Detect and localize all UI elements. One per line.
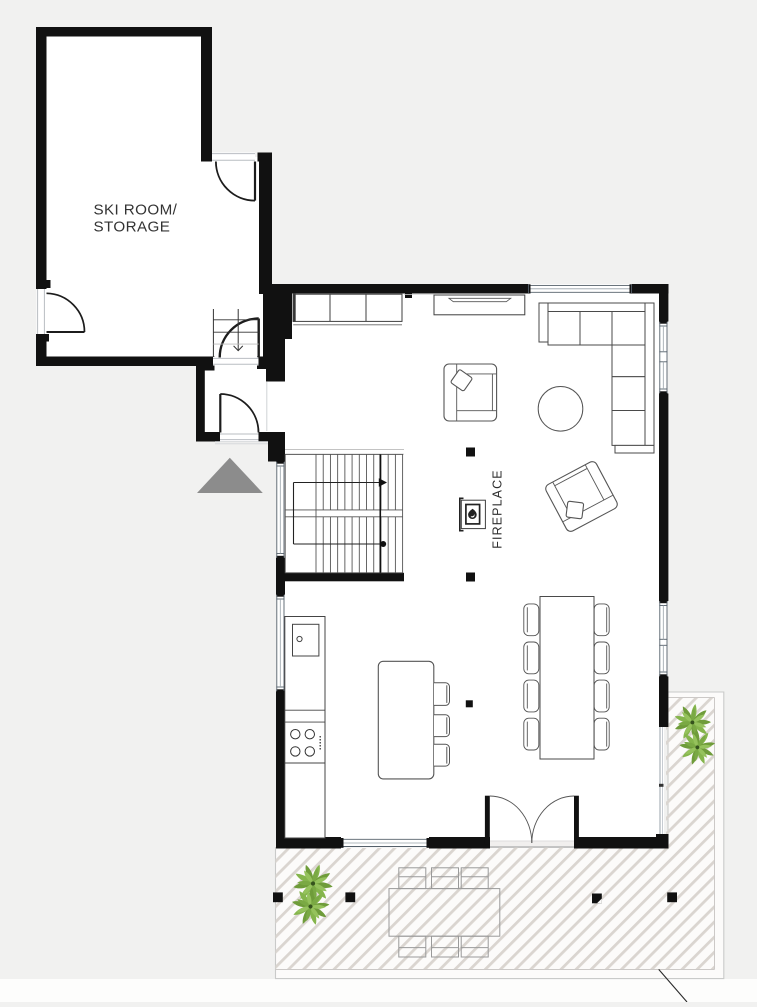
svg-text:SKI ROOM/: SKI ROOM/ [94, 202, 178, 219]
svg-text:STORAGE: STORAGE [94, 218, 171, 235]
svg-text:FIREPLACE: FIREPLACE [490, 469, 504, 548]
